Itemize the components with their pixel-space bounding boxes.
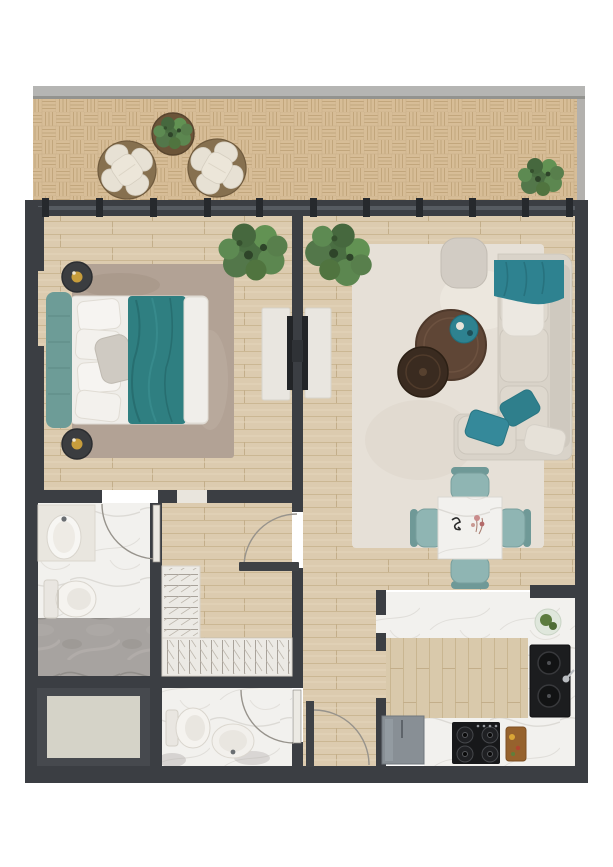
- closet-bottom-wall: [150, 676, 303, 688]
- kitchen-sink: [530, 645, 574, 717]
- fruit-plate: [535, 609, 561, 635]
- cutting-board: [506, 727, 526, 761]
- dining-chair-right: [498, 509, 531, 547]
- entry-floor: [303, 590, 386, 766]
- kitchen-floor: [386, 638, 528, 718]
- floor-plan-canvas: [0, 0, 613, 867]
- dining-chair-bottom: [451, 556, 489, 589]
- bedside-table-lamp-bottom: [62, 429, 92, 459]
- double-bed: [46, 292, 208, 428]
- bathroom1-shower-floor: [37, 618, 150, 676]
- storage-room: [37, 688, 150, 766]
- sofa-teal-throw: [494, 260, 564, 304]
- bed-blanket: [128, 296, 186, 424]
- floor-plan-stage: [0, 0, 613, 867]
- gas-cooktop: [452, 722, 500, 764]
- storage-floor: [47, 696, 140, 758]
- living-tv-console: [305, 308, 331, 398]
- window-glazing: [38, 206, 575, 210]
- kitchen-pier-1: [376, 590, 386, 615]
- balcony-planter-table: [152, 113, 194, 155]
- bedroom-doorway-threshold: [177, 490, 207, 503]
- washbasin-1: [47, 515, 81, 559]
- bed-duvet-foot: [184, 297, 208, 423]
- toilet-1: [44, 580, 96, 618]
- tv-mount: [292, 340, 303, 362]
- bedroom-tv-console: [262, 308, 290, 400]
- bedroom-bottom-wall-left: [37, 490, 102, 503]
- divider-wall-lower: [292, 568, 303, 676]
- washbasin-2: [212, 724, 254, 758]
- bathroom1-fixtures: [38, 505, 96, 618]
- dining-table: [438, 497, 502, 559]
- kitchen-pier-2: [376, 633, 386, 651]
- right-wall: [575, 200, 588, 783]
- pouf: [441, 238, 487, 288]
- balcony: [33, 86, 585, 210]
- left-wall: [25, 200, 38, 783]
- bedside-table-lamp-top: [62, 262, 92, 292]
- kitchen-top-wall-stub: [530, 585, 588, 598]
- bottom-wall: [25, 766, 588, 783]
- bedroom-bottom-wall-right: [207, 490, 292, 503]
- bed-headboard: [46, 292, 72, 428]
- dining-chair-top: [451, 467, 489, 500]
- decor-tray: [450, 315, 478, 343]
- basin-faucet: [61, 516, 66, 521]
- toilet-2: [166, 708, 210, 748]
